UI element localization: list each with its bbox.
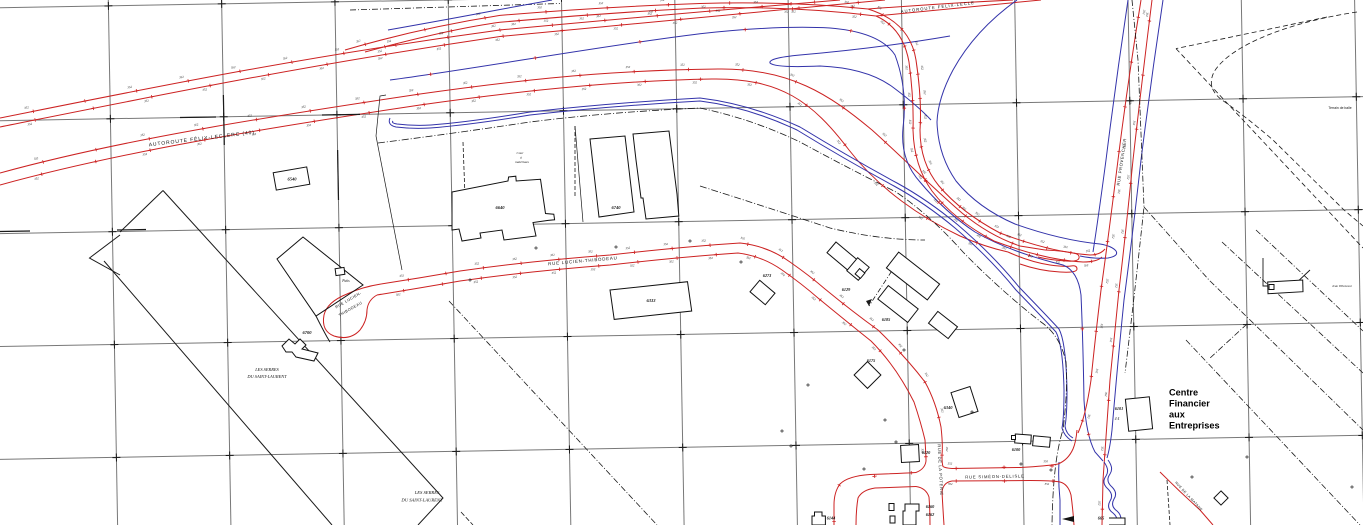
- svg-text:352: 352: [637, 83, 642, 87]
- svg-text:matériaux: matériaux: [515, 160, 529, 164]
- svg-text:352: 352: [1104, 392, 1108, 397]
- svg-text:Centre: Centre: [1169, 387, 1198, 397]
- svg-text:352: 352: [591, 267, 596, 271]
- svg-text:352: 352: [945, 447, 949, 452]
- svg-text:6340: 6340: [944, 405, 954, 410]
- svg-text:352: 352: [669, 259, 674, 263]
- svg-text:352: 352: [626, 65, 631, 69]
- svg-text:352: 352: [680, 63, 685, 67]
- svg-text:Terrain de balle: Terrain de balle: [1328, 106, 1351, 110]
- svg-text:352: 352: [948, 482, 953, 486]
- svg-text:352: 352: [716, 9, 721, 13]
- svg-text:à: à: [520, 156, 522, 160]
- svg-text:352: 352: [544, 18, 549, 22]
- svg-text:6273: 6273: [763, 273, 772, 278]
- svg-text:352: 352: [582, 87, 587, 91]
- svg-text:352: 352: [1043, 459, 1048, 463]
- svg-text:6160: 6160: [926, 504, 935, 509]
- svg-text:352: 352: [948, 461, 953, 465]
- svg-text:DU SAINT-LAURENT: DU SAINT-LAURENT: [400, 498, 443, 503]
- svg-text:352: 352: [1045, 482, 1050, 486]
- svg-text:6144: 6144: [827, 516, 836, 521]
- svg-text:352: 352: [923, 90, 927, 95]
- svg-text:6185: 6185: [882, 317, 891, 322]
- svg-text:aux: aux: [1169, 410, 1186, 420]
- svg-text:352: 352: [660, 0, 665, 2]
- svg-text:6129: 6129: [842, 287, 851, 292]
- svg-text:352: 352: [647, 12, 652, 16]
- svg-text:352: 352: [784, 9, 789, 13]
- svg-text:352: 352: [599, 1, 604, 5]
- svg-text:DU SAINT-LAURENT: DU SAINT-LAURENT: [246, 374, 287, 379]
- svg-text:352: 352: [921, 449, 925, 454]
- svg-text:6175: 6175: [867, 358, 876, 363]
- svg-text:Puits: Puits: [341, 279, 350, 283]
- svg-text:352: 352: [753, 0, 758, 4]
- svg-text:6100: 6100: [1012, 447, 1021, 452]
- svg-text:352: 352: [735, 62, 740, 66]
- svg-text:Cour: Cour: [517, 151, 525, 155]
- svg-text:352: 352: [1097, 501, 1101, 506]
- svg-text:352: 352: [908, 120, 912, 125]
- svg-text:352: 352: [579, 16, 584, 20]
- svg-text:LES SERRES: LES SERRES: [254, 367, 279, 372]
- svg-text:Jean Villeneuve: Jean Villeneuve: [1332, 284, 1353, 288]
- svg-text:Financier: Financier: [1169, 398, 1210, 408]
- svg-text:352: 352: [907, 92, 911, 97]
- svg-text:Entreprises: Entreprises: [1169, 421, 1220, 431]
- svg-text:352: 352: [588, 249, 593, 253]
- svg-text:352: 352: [1100, 446, 1104, 451]
- svg-text:352: 352: [701, 4, 706, 8]
- svg-text:RUE SIMÉON-DELISLE: RUE SIMÉON-DELISLE: [965, 473, 1025, 479]
- svg-text:352: 352: [511, 22, 516, 26]
- svg-text:352: 352: [537, 5, 542, 9]
- svg-text:352: 352: [701, 238, 706, 242]
- svg-text:LES SERRES: LES SERRES: [414, 490, 440, 495]
- svg-text:665: 665: [1098, 516, 1105, 521]
- svg-text:6700: 6700: [303, 330, 313, 335]
- svg-text:4 4: 4 4: [1115, 417, 1120, 421]
- svg-text:352: 352: [708, 256, 713, 260]
- svg-text:352: 352: [596, 14, 601, 18]
- svg-text:6540: 6540: [288, 177, 298, 182]
- svg-text:6640: 6640: [496, 205, 506, 210]
- svg-text:6333: 6333: [647, 298, 657, 303]
- svg-text:352: 352: [923, 115, 927, 120]
- svg-text:352: 352: [692, 80, 697, 84]
- svg-text:352: 352: [732, 15, 737, 19]
- svg-text:352: 352: [571, 69, 576, 73]
- svg-text:6101: 6101: [1115, 406, 1124, 411]
- svg-text:352: 352: [844, 0, 849, 4]
- svg-text:6162: 6162: [926, 512, 935, 517]
- svg-text:6740: 6740: [612, 205, 622, 210]
